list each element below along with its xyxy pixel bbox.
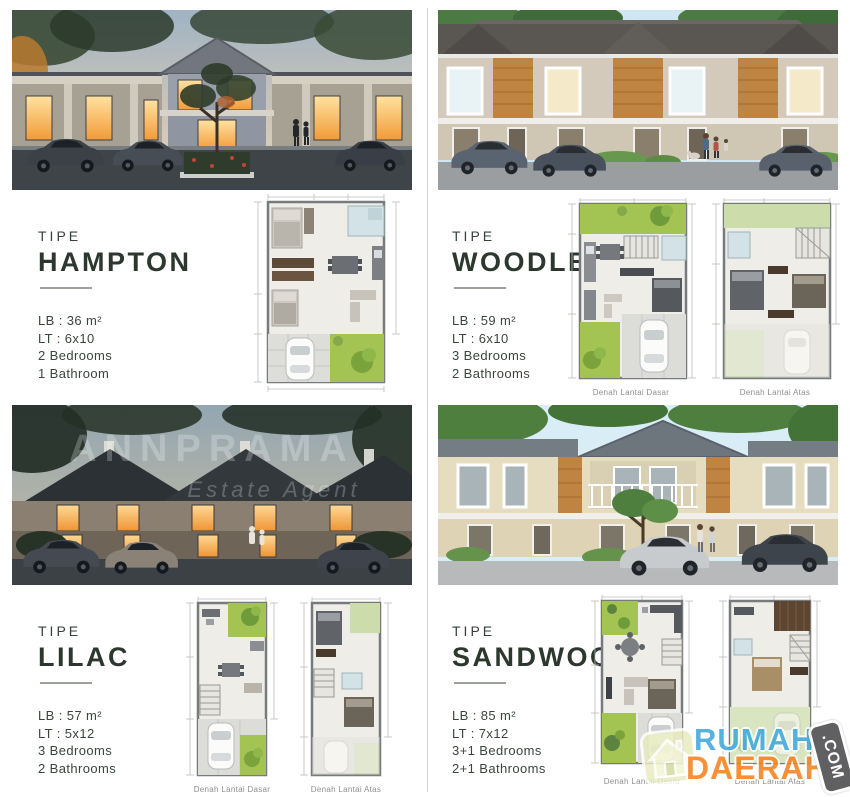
unit-card-lilac: ANNPRAMA Estate Agent TIPE LILAC LB : 57… [12, 405, 412, 585]
tipe-label: TIPE [38, 228, 228, 244]
floorplan-caption-upper: Denah Lantai Atas [311, 785, 381, 794]
woodlea-exterior-render [438, 10, 838, 190]
svg-text:Estate Agent: Estate Agent [187, 477, 360, 502]
spec-lb: LB : 36 m² [38, 312, 228, 330]
lilac-floorplan-ground [184, 597, 280, 781]
spec-bedrooms: 2 Bedrooms [38, 347, 228, 365]
title-divider [454, 682, 506, 684]
unit-card-hampton: TIPE HAMPTON LB : 36 m² LT : 6x10 2 Bedr… [12, 10, 412, 190]
brand-line2: DAERAH [686, 752, 829, 784]
title-divider [454, 287, 506, 289]
title-divider [40, 682, 92, 684]
unit-info: TIPE HAMPTON LB : 36 m² LT : 6x10 2 Bedr… [38, 228, 228, 382]
lilac-floorplan-upper [298, 597, 394, 781]
sandwood-exterior-render [438, 405, 838, 585]
unit-card-woodlea: TIPE WOODLEA LB : 59 m² LT : 6x10 3 Bedr… [438, 10, 838, 190]
spec-lt: LT : 6x10 [38, 330, 228, 348]
unit-name: HAMPTON [38, 247, 228, 278]
unit-card-sandwood: TIPE SANDWOOD LB : 85 m² LT : 7x12 3+1 B… [438, 405, 838, 585]
hampton-floorplan [244, 194, 412, 394]
houses [438, 20, 838, 160]
car-top-icon [286, 338, 314, 380]
hampton-exterior-render [12, 10, 412, 190]
woodlea-floorplan-ground [564, 198, 698, 384]
brand-logo: RUMAH DAERAH .COM [640, 724, 850, 796]
quadrant-divider [427, 8, 428, 792]
car-top-icon [640, 320, 668, 372]
title-divider [40, 287, 92, 289]
floorplan-caption-upper: Denah Lantai Atas [740, 388, 810, 397]
floorplan-caption-ground: Denah Lantai Dasar [593, 388, 670, 397]
woodlea-floorplan-upper [708, 198, 842, 384]
car-top-icon [208, 723, 234, 769]
svg-text:ANNPRAMA: ANNPRAMA [69, 428, 355, 470]
floorplan-caption-ground: Denah Lantai Dasar [194, 785, 271, 794]
lilac-exterior-render: ANNPRAMA Estate Agent [12, 405, 412, 585]
spec-bathrooms: 1 Bathroom [38, 365, 228, 383]
